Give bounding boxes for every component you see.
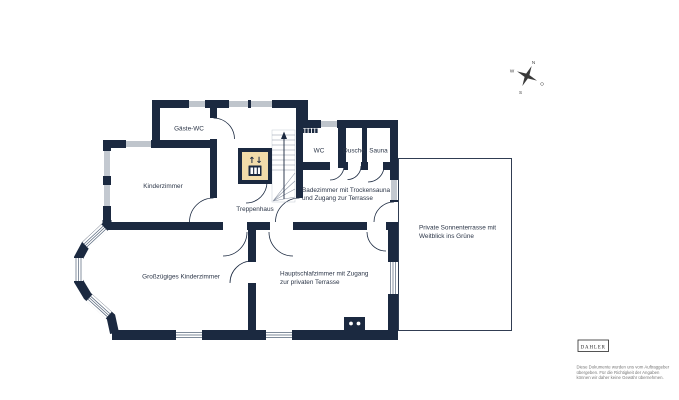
compass-north-label: N — [532, 60, 535, 65]
elevator-arrows-icon: ↑↓ — [248, 156, 262, 166]
staircase — [272, 130, 295, 202]
window — [189, 100, 205, 108]
disclaimer-line-1: Diese Dokumente wurden uns vom Auftragge… — [577, 365, 670, 370]
elevator-cab-icon — [249, 166, 262, 177]
window — [103, 185, 111, 206]
branding: DAHLER Diese Dokumente wurden uns vom Au… — [577, 340, 670, 380]
room-label-badezimmer-line2: und Zugang zur Terrasse — [302, 195, 373, 202]
windows — [74, 100, 398, 340]
room-label-grosszuegiges-kinderzimmer: Großzügiges Kinderzimmer — [142, 273, 221, 280]
chimney-icon — [344, 317, 365, 330]
terrace-outline — [399, 159, 512, 331]
window — [229, 100, 248, 108]
floor-plan-canvas: ↑↓ Gäste-WC Kinderzimmer Treppenhaus WC … — [0, 0, 679, 400]
room-label-hauptschlafzimmer-line1: Hauptschlafzimmer mit Zugang — [280, 271, 369, 278]
room-label-sonnenterrasse-line2: Weitblick ins Grüne — [419, 233, 474, 240]
disclaimer-line-3: können wir daher keine Gewähr übernehmen… — [577, 375, 664, 380]
radiator-icon — [302, 129, 318, 134]
room-label-gaeste-wc: Gäste-WC — [174, 126, 204, 133]
window — [321, 120, 337, 128]
window — [266, 330, 292, 340]
window — [176, 330, 202, 340]
window — [82, 224, 107, 248]
room-label-treppenhaus: Treppenhaus — [236, 206, 273, 213]
walls — [79, 100, 399, 340]
room-label-sauna: Sauna — [369, 147, 388, 154]
compass-icon: N O S W — [510, 60, 544, 95]
compass-west-label: W — [510, 69, 515, 74]
window — [103, 151, 111, 176]
window — [251, 100, 272, 108]
disclaimer-line-2: übergeben. Für die Richtigkeit der Angab… — [577, 370, 660, 375]
window — [126, 140, 151, 148]
room-label-dusche: Dusche — [343, 147, 365, 154]
window — [86, 294, 111, 318]
window — [390, 180, 398, 200]
room-label-badezimmer-line1: Badezimmer mit Trockensauna — [302, 187, 391, 194]
logo-text: DAHLER — [581, 345, 606, 350]
room-label-sonnenterrasse-line1: Private Sonnenterrasse mit — [419, 224, 496, 231]
room-label-kinderzimmer: Kinderzimmer — [143, 183, 183, 190]
compass-east-label: O — [540, 82, 544, 87]
window — [74, 258, 83, 281]
window — [388, 262, 398, 294]
elevator: ↑↓ — [238, 148, 272, 184]
room-label-wc: WC — [314, 147, 325, 154]
room-label-hauptschlafzimmer-line2: zur privaten Terrasse — [280, 279, 340, 286]
compass-south-label: S — [519, 90, 522, 95]
terrace-door-opening — [390, 202, 398, 222]
